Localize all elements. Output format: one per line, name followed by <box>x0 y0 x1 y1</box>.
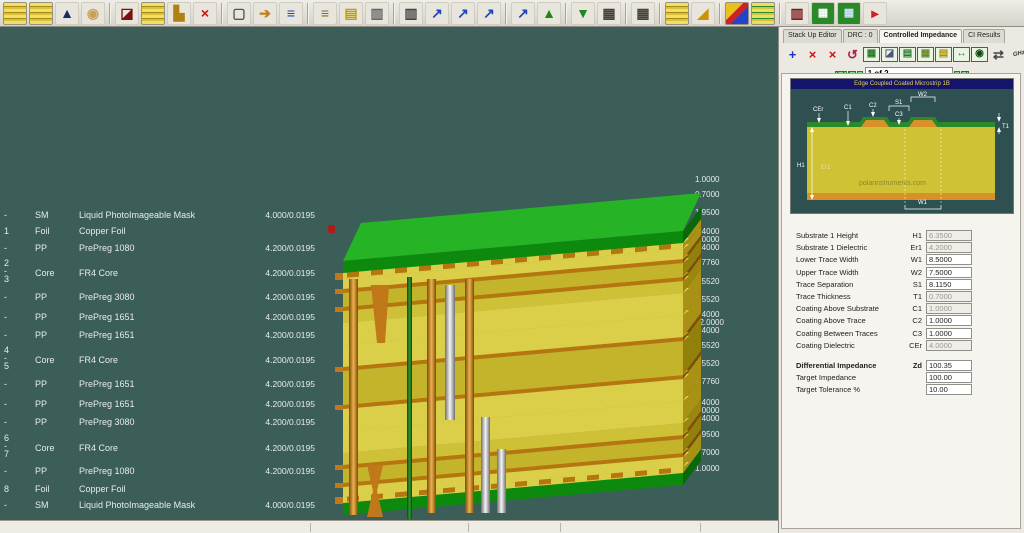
param-field-t1[interactable] <box>926 291 972 302</box>
param-code: T1 <box>890 292 922 301</box>
param-row: Coating Above SubstrateC1 <box>792 303 1016 315</box>
structure-layers-icon[interactable]: ▤ <box>899 47 916 62</box>
main-toolbar: ▲◉◪▙×▢➔≡≡▤▥▥↗↗↗↗▲▼▦▦◢▥▦▦▸ <box>0 0 1024 27</box>
param-code: S1 <box>890 280 922 289</box>
layer-number: - <box>4 500 26 510</box>
application-window: ▲◉◪▙×▢➔≡≡▤▥▥↗↗↗↗▲▼▦▦◢▥▦▦▸ -SMLiquid Phot… <box>0 0 1024 533</box>
param-label: Lower Trace Width <box>796 255 859 264</box>
pin-icon[interactable]: ▸ <box>863 2 887 25</box>
layer-number: 6-7 <box>4 434 26 458</box>
layer-type: PP <box>35 466 47 476</box>
layer-material: Copper Foil <box>79 226 126 236</box>
toolbar-separator <box>221 3 223 24</box>
layer-number: 8 <box>4 484 26 494</box>
param-label: Upper Trace Width <box>796 268 859 277</box>
toolbar-separator <box>109 3 111 24</box>
layer-er-value: 4.200/0.0195 <box>228 312 315 322</box>
stackup-3d-view <box>333 165 723 521</box>
param-label: Coating Between Traces <box>796 329 878 338</box>
param-row: Substrate 1 HeightH1 <box>792 230 1016 242</box>
target-impedance-field[interactable] <box>926 372 972 383</box>
param-code: W2 <box>890 268 922 277</box>
refresh-structure-icon[interactable]: ↺ <box>843 45 862 63</box>
calc-field-icon[interactable]: ▦ <box>837 2 861 25</box>
ci-toolbar: +××↺▦◪▤▦▤↔◉⇄GHz <box>783 43 1024 65</box>
layer-type: PP <box>35 243 47 253</box>
drill-machine-1-icon[interactable]: ▦ <box>597 2 621 25</box>
param-row: Trace SeparationS1 <box>792 279 1016 291</box>
layer-type: Foil <box>35 484 50 494</box>
layer-material: PrePreg 1080 <box>79 243 135 253</box>
param-field-h1[interactable] <box>926 230 972 241</box>
param-code: CEr <box>890 341 922 350</box>
layer-er-value: 4.200/0.0195 <box>228 268 315 278</box>
layer-number: - <box>4 417 26 427</box>
layer-number: - <box>4 466 26 476</box>
pair-icon[interactable]: ⇄ <box>989 45 1008 63</box>
svg-text:CEr: CEr <box>813 107 823 113</box>
add-structure-icon[interactable]: + <box>783 45 802 63</box>
layer-er-value: 4.200/0.0195 <box>228 292 315 302</box>
param-label: Substrate 1 Dielectric <box>796 243 867 252</box>
param-label: Trace Thickness <box>796 292 851 301</box>
param-label: Coating Above Substrate <box>796 304 879 313</box>
drill-span-marker <box>328 225 335 233</box>
stack-materials-icon[interactable] <box>751 2 775 25</box>
layer-number: - <box>4 292 26 302</box>
toolbar-separator <box>719 3 721 24</box>
drill-machine-2-icon[interactable]: ▦ <box>631 2 655 25</box>
svg-text:W1: W1 <box>918 200 928 206</box>
drill-tool-1-icon[interactable]: ↗ <box>425 2 449 25</box>
layer-number: - <box>4 312 26 322</box>
tab-controlled-impedance[interactable]: Controlled Impedance <box>879 29 963 43</box>
param-row: Coating Above TraceC2 <box>792 315 1016 327</box>
param-row: Coating DielectricCEr <box>792 340 1016 352</box>
layer-type: Foil <box>35 226 50 236</box>
layer-material: Copper Foil <box>79 484 126 494</box>
layer-number: - <box>4 330 26 340</box>
view-structure-icon[interactable]: ◉ <box>971 47 988 62</box>
layer-number: 4-5 <box>4 346 26 370</box>
param-field-er1[interactable] <box>926 242 972 253</box>
toolbar-separator <box>565 3 567 24</box>
trace-style-icon[interactable]: ▦ <box>917 47 934 62</box>
param-label: Substrate 1 Height <box>796 231 858 240</box>
ci-content-area: Edge Coupled Coated Microstrip 1B <box>781 73 1021 529</box>
param-field-w2[interactable] <box>926 267 972 278</box>
bell-icon[interactable]: ◉ <box>81 2 105 25</box>
layer-number: - <box>4 243 26 253</box>
parameter-table: Substrate 1 HeightH1Substrate 1 Dielectr… <box>792 230 1016 352</box>
param-code: H1 <box>890 231 922 240</box>
layer-type: Core <box>35 268 55 278</box>
zd-code: Zd <box>890 361 922 370</box>
toolbar-separator <box>625 3 627 24</box>
tab-stack-up-editor[interactable]: Stack Up Editor <box>783 29 842 43</box>
param-field-c2[interactable] <box>926 315 972 326</box>
structure-diagram: Edge Coupled Coated Microstrip 1B <box>790 78 1014 214</box>
layer-material: Liquid PhotoImageable Mask <box>79 210 195 220</box>
differential-impedance-field[interactable] <box>926 360 972 371</box>
toolbar-separator <box>505 3 507 24</box>
measure-icon[interactable]: ↔ <box>953 47 970 62</box>
layer-material: PrePreg 1651 <box>79 379 135 389</box>
impedance-results: Differential Impedance Zd Target Impedan… <box>792 360 1016 397</box>
layer-material: PrePreg 1651 <box>79 399 135 409</box>
open-stackup-icon[interactable] <box>29 2 53 25</box>
print-icon[interactable]: ▥ <box>365 2 389 25</box>
toolbar-separator <box>393 3 395 24</box>
param-label: Trace Separation <box>796 280 853 289</box>
param-field-c1[interactable] <box>926 303 972 314</box>
param-code: C1 <box>890 304 922 313</box>
print-report-icon[interactable]: ▥ <box>399 2 423 25</box>
differential-impedance-label: Differential Impedance <box>796 361 876 370</box>
param-code: C3 <box>890 329 922 338</box>
calc-structure-icon[interactable]: ▦ <box>863 47 880 62</box>
delete-icon[interactable]: × <box>193 2 217 25</box>
structure-image-icon[interactable]: ◪ <box>881 47 898 62</box>
svg-text:W2: W2 <box>918 92 928 98</box>
add-layer-icon[interactable] <box>141 2 165 25</box>
param-code: W1 <box>890 255 922 264</box>
column-chart-icon[interactable]: ▥ <box>785 2 809 25</box>
toolbar-separator <box>307 3 309 24</box>
layer-material: FR4 Core <box>79 355 118 365</box>
svg-text:H1: H1 <box>797 163 805 169</box>
export-icon[interactable]: ▼ <box>571 2 595 25</box>
layer-type: Core <box>35 443 55 453</box>
svg-text:polarinstruments.com: polarinstruments.com <box>859 180 926 187</box>
move-layer-icon[interactable]: ➔ <box>253 2 277 25</box>
structure-cross-section: H1 Er1 CEr C1 C2 S1 C3 W2 <box>791 89 1013 213</box>
layer-type: Core <box>35 355 55 365</box>
tab-ci-results[interactable]: CI Results <box>963 29 1005 43</box>
layer-material: FR4 Core <box>79 443 118 453</box>
layer-number: - <box>4 379 26 389</box>
param-field-s1[interactable] <box>926 279 972 290</box>
layer-er-value: 4.200/0.0195 <box>228 243 315 253</box>
delete-structure-icon[interactable]: × <box>803 45 822 63</box>
target-tolerance-field[interactable] <box>926 384 972 395</box>
structure-title: Edge Coupled Coated Microstrip 1B <box>791 79 1013 89</box>
param-row: Lower Trace WidthW1 <box>792 254 1016 266</box>
layer-material: PrePreg 3080 <box>79 417 135 427</box>
layer-er-value: 4.200/0.0195 <box>228 330 315 340</box>
param-code: C2 <box>890 316 922 325</box>
svg-text:S1: S1 <box>895 100 903 106</box>
layer-type: PP <box>35 312 47 322</box>
controlled-impedance-panel: Stack Up Editor DRC : 0 Controlled Imped… <box>778 27 1024 533</box>
stackup-canvas[interactable]: -SMLiquid PhotoImageable Mask4.000/0.019… <box>0 27 778 520</box>
svg-text:Er1: Er1 <box>821 165 831 171</box>
swap-layers-icon[interactable]: ≡ <box>279 2 303 25</box>
layer-material: Liquid PhotoImageable Mask <box>79 500 195 510</box>
param-row: Trace ThicknessT1 <box>792 291 1016 303</box>
calc-impedance-icon[interactable]: ▦ <box>811 2 835 25</box>
svg-text:C3: C3 <box>895 112 903 118</box>
layer-number: - <box>4 399 26 409</box>
toolbar-separator <box>659 3 661 24</box>
svg-text:C1: C1 <box>844 105 852 111</box>
param-row: Coating Between TracesC3 <box>792 328 1016 340</box>
add-drill-icon[interactable]: ▙ <box>167 2 191 25</box>
new-stackup-icon[interactable] <box>3 2 27 25</box>
layer-er-value: 4.200/0.0195 <box>228 443 315 453</box>
layer-er-value: 4.200/0.0195 <box>228 466 315 476</box>
layer-material: PrePreg 1651 <box>79 330 135 340</box>
layer-type: PP <box>35 379 47 389</box>
layer-er-value: 4.200/0.0195 <box>228 417 315 427</box>
eraser-3d-icon[interactable]: ◢ <box>691 2 715 25</box>
reorder-layers-icon[interactable]: ≡ <box>313 2 337 25</box>
thick-stack-icon[interactable] <box>665 2 689 25</box>
layer-material: PrePreg 1080 <box>79 466 135 476</box>
drill-tool-3-icon[interactable]: ↗ <box>477 2 501 25</box>
svg-text:T1: T1 <box>1002 124 1010 130</box>
layer-er-value: 4.000/0.0195 <box>228 500 315 510</box>
mirror-stackup-icon[interactable]: ◪ <box>115 2 139 25</box>
layer-type: PP <box>35 399 47 409</box>
layer-type: PP <box>35 292 47 302</box>
drill-tool-2-icon[interactable]: ↗ <box>451 2 475 25</box>
param-row: Substrate 1 DielectricEr1 <box>792 242 1016 254</box>
param-field-c3[interactable] <box>926 328 972 339</box>
layer-er-value: 4.200/0.0195 <box>228 379 315 389</box>
layer-type: SM <box>35 210 49 220</box>
layer-number: 2-3 <box>4 259 26 283</box>
tab-drc[interactable]: DRC : 0 <box>843 29 878 43</box>
panel-tabs: Stack Up Editor DRC : 0 Controlled Imped… <box>783 29 1006 43</box>
svg-text:C2: C2 <box>869 103 877 109</box>
param-label: Coating Dielectric <box>796 341 855 350</box>
layer-er-value: 4.200/0.0195 <box>228 355 315 365</box>
stackup-wizard-icon[interactable]: ▲ <box>55 2 79 25</box>
layer-type: PP <box>35 330 47 340</box>
layer-er-value: 4.200/0.0195 <box>228 399 315 409</box>
notes-icon[interactable]: ▤ <box>339 2 363 25</box>
frame-icon[interactable]: ▢ <box>227 2 251 25</box>
param-label: Coating Above Trace <box>796 316 866 325</box>
material-cube-icon[interactable] <box>725 2 749 25</box>
param-row: Upper Trace WidthW2 <box>792 267 1016 279</box>
layer-type: PP <box>35 417 47 427</box>
param-code: Er1 <box>890 243 922 252</box>
layer-material: PrePreg 1651 <box>79 312 135 322</box>
param-field-cer[interactable] <box>926 340 972 351</box>
layer-material: PrePreg 3080 <box>79 292 135 302</box>
drill-tool-4-icon[interactable]: ↗ <box>511 2 535 25</box>
import-icon[interactable]: ▲ <box>537 2 561 25</box>
param-field-w1[interactable] <box>926 254 972 265</box>
toolbar-separator <box>779 3 781 24</box>
target-tolerance-label: Target Tolerance % <box>796 385 860 394</box>
layer-er-value: 4.000/0.0195 <box>228 210 315 220</box>
delete-all-structures-icon[interactable]: × <box>823 45 842 63</box>
layer-type: SM <box>35 500 49 510</box>
layer-material: FR4 Core <box>79 268 118 278</box>
ghz-icon[interactable]: GHz <box>1009 45 1024 63</box>
layer-number: 1 <box>4 226 26 236</box>
layer-number: - <box>4 210 26 220</box>
target-impedance-label: Target Impedance <box>796 373 856 382</box>
coating-icon[interactable]: ▤ <box>935 47 952 62</box>
